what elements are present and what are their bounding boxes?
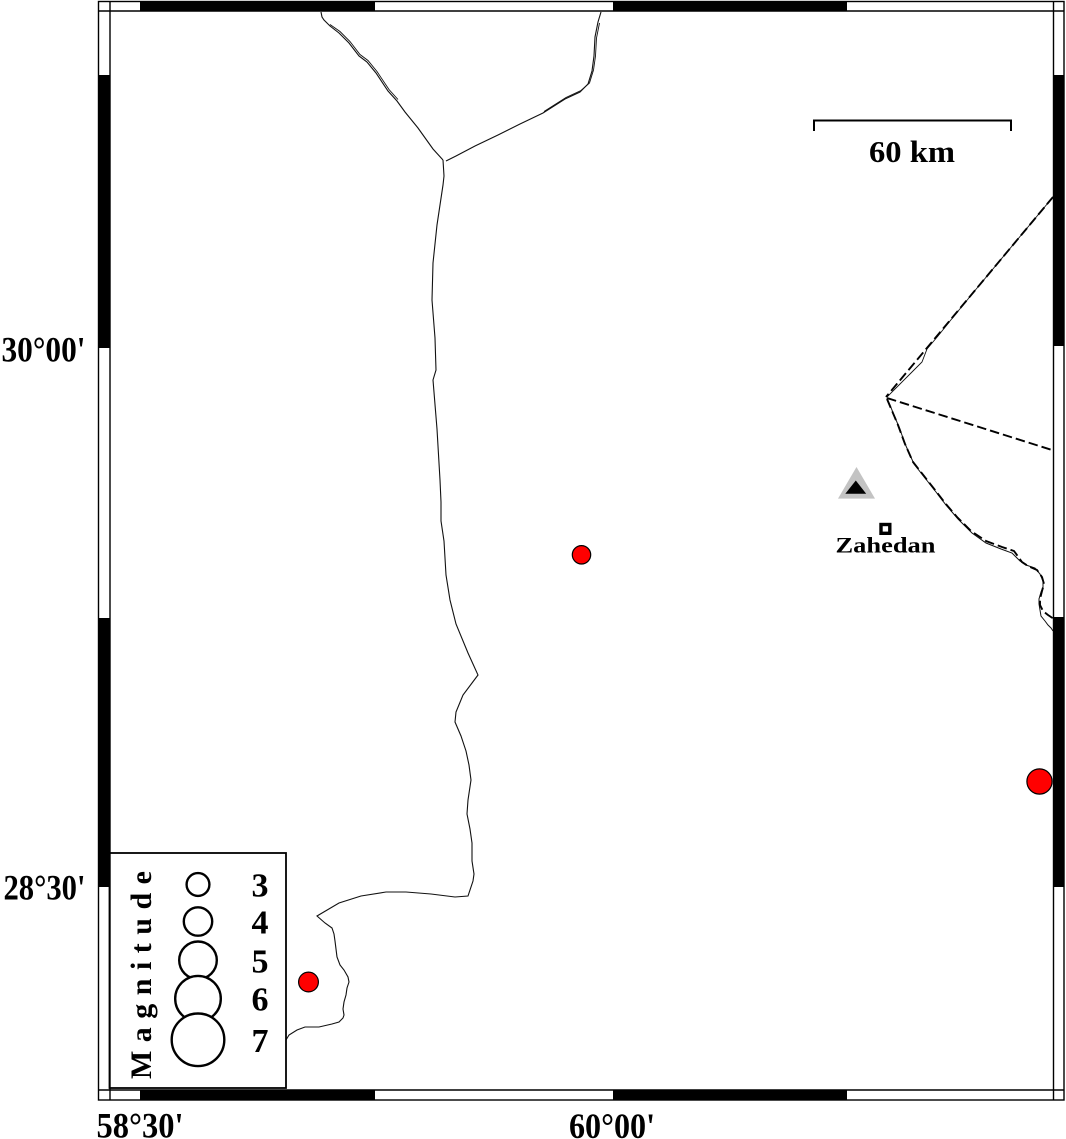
svg-text:5: 5: [252, 943, 269, 980]
svg-text:7: 7: [252, 1023, 269, 1060]
svg-text:30°00': 30°00': [2, 330, 86, 370]
svg-text:58°30': 58°30': [97, 1106, 184, 1139]
svg-text:3: 3: [252, 868, 269, 905]
svg-text:60 km: 60 km: [869, 134, 955, 169]
svg-text:6: 6: [252, 982, 269, 1019]
svg-text:4: 4: [252, 905, 269, 942]
svg-text:60°00': 60°00': [569, 1106, 655, 1139]
svg-text:28°30': 28°30': [4, 868, 86, 908]
svg-text:Zahedan: Zahedan: [836, 533, 936, 558]
